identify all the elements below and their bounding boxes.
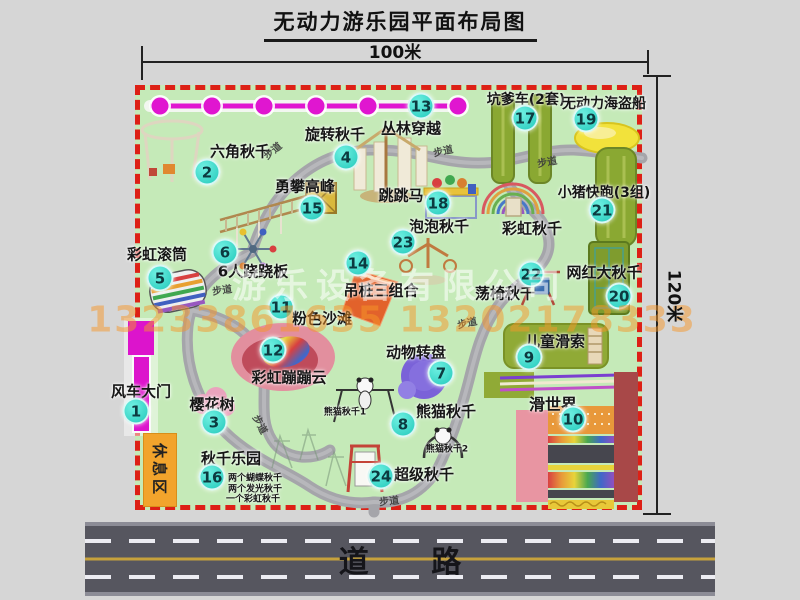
watermark-phone: 13233861635 13202178333 (87, 300, 697, 341)
map-extra-label-1: 熊猫秋千1 (324, 405, 366, 418)
map-extra-label-5: 一个彩虹秋千 (226, 492, 280, 505)
road-label: 道 路 (313, 537, 487, 581)
page-title: 无动力游乐园平面布局图 (264, 6, 537, 42)
map-item-number-badge-7: 7 (428, 360, 455, 387)
map-extra-label-2: 熊猫秋千2 (426, 442, 468, 455)
map-item-number-badge-16: 16 (199, 464, 226, 491)
map-item-number-badge-9: 9 (516, 344, 543, 371)
map-item-label-24: 超级秋千 (394, 464, 454, 485)
map-item-number-badge-19: 19 (573, 106, 600, 133)
title-wrap: 无动力游乐园平面布局图 (0, 6, 800, 42)
map-item-number-badge-23: 23 (390, 229, 417, 256)
park-plan-screenshot: 无动力游乐园平面布局图 (0, 0, 800, 600)
map-item-label-23: 泡泡秋千 (409, 216, 469, 237)
road: 道 路 (85, 522, 715, 596)
map-item-number-badge-1: 1 (123, 398, 150, 425)
map-item-label-20: 网红大秋千 (566, 262, 641, 283)
map-item-number-badge-15: 15 (299, 195, 326, 222)
rest-area-box: 休息区 (143, 433, 177, 507)
dimension-width-label: 100米 (369, 38, 422, 63)
map-item-label-8: 熊猫秋千 (416, 401, 476, 422)
map-item-label-12: 彩虹蹦蹦云 (251, 367, 326, 388)
map-item-number-badge-24: 24 (368, 463, 395, 490)
map-item-label-5: 彩虹滚筒 (127, 244, 187, 265)
map-item-label-13: 丛林穿越 (381, 118, 441, 139)
map-item-label-15: 勇攀高峰 (275, 176, 335, 197)
map-item-number-badge-12: 12 (260, 337, 287, 364)
walkway-label-3: 步道 (211, 280, 233, 298)
map-item-number-badge-21: 21 (589, 197, 616, 224)
map-item-number-badge-18: 18 (425, 190, 452, 217)
map-extra-label-0: 彩虹秋千 (502, 218, 562, 239)
rest-area-label: 休息区 (150, 443, 171, 497)
walkway-label-6: 步道 (378, 491, 399, 508)
map-item-number-badge-8: 8 (390, 411, 417, 438)
map-item-number-badge-10: 10 (560, 406, 587, 433)
map-item-number-badge-5: 5 (147, 265, 174, 292)
map-item-number-badge-17: 17 (512, 105, 539, 132)
map-item-number-badge-13: 13 (408, 93, 435, 120)
dimension-height-label: 120米 (664, 270, 689, 323)
map-item-label-18: 跳跳马 (378, 185, 423, 206)
map-item-number-badge-3: 3 (201, 409, 228, 436)
map-item-number-badge-2: 2 (194, 159, 221, 186)
map-item-number-badge-4: 4 (333, 144, 360, 171)
map-item-label-4: 旋转秋千 (305, 124, 365, 145)
